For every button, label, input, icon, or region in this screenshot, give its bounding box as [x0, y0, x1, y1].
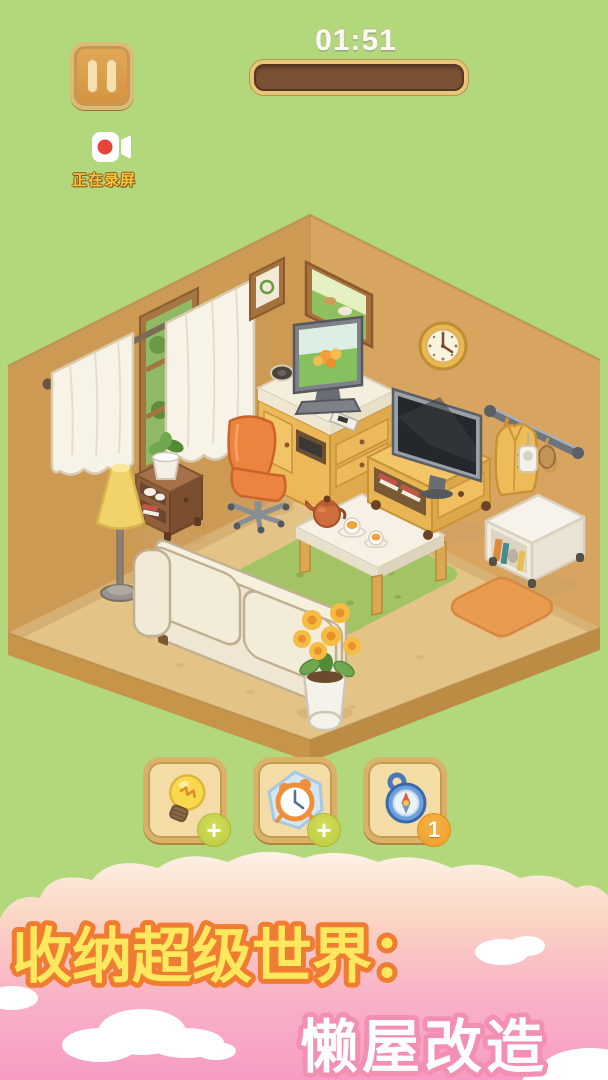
wall-clock[interactable] [420, 323, 466, 369]
room-scene [0, 205, 608, 785]
video-camera-icon [76, 128, 132, 168]
pause-icon [106, 59, 117, 93]
pause-icon [87, 59, 98, 93]
screen-record-indicator: 正在录屏 [58, 128, 150, 190]
hint-bulb-button[interactable]: + [143, 757, 227, 843]
freeze-time-button[interactable]: + [253, 757, 337, 843]
find-item-compass-button[interactable]: 1 [363, 757, 447, 843]
game-screen: 01:51 正在录屏 [0, 0, 608, 1080]
recording-label: 正在录屏 [58, 169, 150, 190]
banner-title: 收纳超级世界： [12, 923, 432, 990]
item-button-row: + + 1 [143, 757, 447, 843]
pause-button[interactable] [70, 42, 134, 110]
progress-bar [250, 60, 468, 95]
promo-banner: 收纳超级世界： 懒屋改造 [0, 840, 608, 1080]
banner-subtitle: 懒屋改造 [300, 1015, 548, 1080]
countdown-timer: 01:51 [300, 24, 412, 58]
hanging-pouch[interactable] [539, 446, 555, 468]
